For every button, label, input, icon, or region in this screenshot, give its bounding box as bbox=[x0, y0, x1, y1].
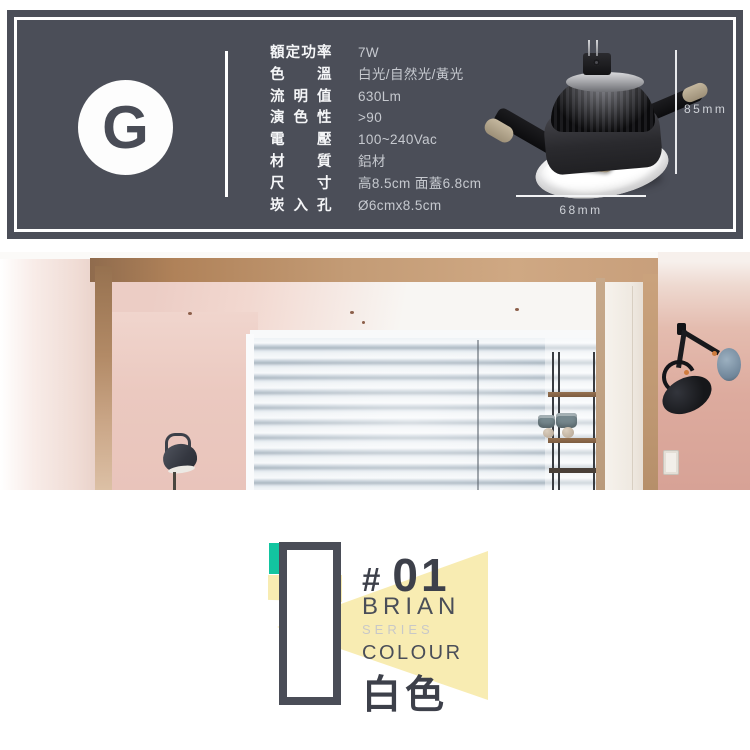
decor-ball bbox=[543, 428, 554, 438]
wall-lamp-accent bbox=[684, 370, 689, 375]
outline-rectangle bbox=[279, 542, 341, 705]
lamp-pin bbox=[596, 40, 598, 56]
door-panel bbox=[605, 282, 643, 490]
colour-word: COLOUR bbox=[362, 642, 463, 665]
lamp-cap bbox=[566, 72, 644, 92]
wood-trim-left bbox=[95, 266, 112, 490]
spec-label: 崁 入 孔 bbox=[270, 194, 332, 215]
spec-label: 額定功率 bbox=[270, 41, 332, 62]
spec-label: 流 明 值 bbox=[270, 85, 332, 106]
lamp-base bbox=[583, 53, 611, 75]
spec-label: 尺 寸 bbox=[270, 172, 332, 193]
spec-value: 鋁材 bbox=[358, 150, 386, 170]
spec-value: 高8.5cm 面蓋6.8cm bbox=[358, 172, 481, 192]
shelf-board bbox=[548, 438, 603, 443]
spec-value: 7W bbox=[358, 45, 379, 60]
series-word: SERIES bbox=[362, 622, 434, 637]
door-frame bbox=[596, 278, 605, 490]
basket bbox=[556, 413, 577, 428]
spec-value: 630Lm bbox=[358, 89, 401, 104]
vertical-divider bbox=[225, 51, 228, 197]
lamp-pin bbox=[588, 40, 590, 56]
spec-row: 尺 寸 高8.5cm 面蓋6.8cm bbox=[270, 172, 530, 194]
brand-block: #01 BRIAN SERIES COLOUR 白色 bbox=[0, 490, 750, 750]
spec-row: 色 溫 白光/自然光/黃光 bbox=[270, 63, 530, 85]
dimension-height-label: 85mm bbox=[684, 102, 727, 116]
dimension-line-width bbox=[516, 195, 646, 197]
recessed-spot bbox=[362, 321, 365, 324]
series-name: BRIAN bbox=[362, 593, 460, 621]
wood-trim-right bbox=[643, 274, 658, 490]
wood-beam bbox=[90, 258, 658, 282]
room-photo bbox=[0, 252, 750, 490]
product-banner: G 額定功率 7W 色 溫 白光/自然光/黃光 流 明 值 630Lm 演 色 … bbox=[0, 0, 750, 750]
window-mullion bbox=[477, 340, 479, 490]
window-left-edge bbox=[246, 334, 254, 490]
spec-row: 材 質 鋁材 bbox=[270, 150, 530, 172]
door-seam bbox=[632, 286, 633, 490]
spec-panel: G 額定功率 7W 色 溫 白光/自然光/黃光 流 明 值 630Lm 演 色 … bbox=[7, 10, 743, 239]
spec-label: 電 壓 bbox=[270, 128, 332, 149]
spec-label: 材 質 bbox=[270, 150, 332, 171]
shelf-board bbox=[549, 468, 603, 473]
spec-value: 白光/自然光/黃光 bbox=[358, 63, 464, 83]
model-badge-letter: G bbox=[102, 98, 149, 158]
recessed-spot bbox=[515, 308, 519, 311]
spec-row: 崁 入 孔 Ø6cmx8.5cm bbox=[270, 194, 530, 216]
dimension-line-height bbox=[675, 50, 677, 174]
spec-value: 100~240Vac bbox=[358, 132, 437, 147]
model-badge: G bbox=[78, 80, 173, 175]
outer-wall-left bbox=[0, 252, 96, 490]
spec-value: Ø6cmx8.5cm bbox=[358, 198, 442, 213]
wall-lamp-accent bbox=[712, 351, 717, 356]
colour-value: 白色 bbox=[362, 664, 448, 720]
desk-lamp-stem bbox=[173, 472, 176, 490]
dimension-width-label: 68mm bbox=[516, 203, 646, 217]
recessed-spot bbox=[188, 312, 192, 315]
basket bbox=[538, 415, 555, 428]
decor-ball bbox=[562, 427, 574, 438]
spec-label: 演 色 性 bbox=[270, 106, 332, 127]
spec-label: 色 溫 bbox=[270, 63, 332, 84]
shelf-board bbox=[548, 392, 603, 397]
wall-lamp-plate bbox=[717, 348, 741, 381]
spec-value: >90 bbox=[358, 110, 382, 125]
recessed-spot bbox=[350, 311, 354, 314]
spec-row: 額定功率 7W bbox=[270, 41, 530, 63]
spec-row: 流 明 值 630Lm bbox=[270, 85, 530, 107]
light-switch bbox=[663, 450, 679, 475]
